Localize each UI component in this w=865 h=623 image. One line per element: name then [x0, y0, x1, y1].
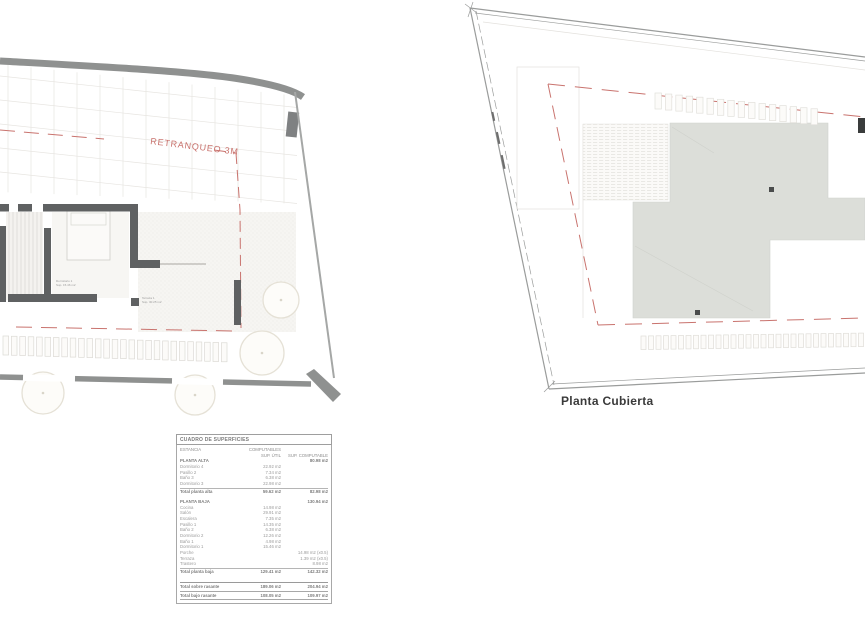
- terrain-grid-lines: [0, 65, 297, 204]
- table-row: Total bajo rasante108.05 m2109.97 m2: [180, 592, 328, 601]
- drawing-sheet: RETRANQUEO 3M Dormitorio 1 Sup. 15.4: [0, 0, 865, 623]
- deck-floor: [6, 212, 43, 300]
- bed-symbol: [67, 210, 110, 260]
- table-row: Total planta baja129.41 m2142.32 m2: [180, 568, 328, 575]
- road-edge-band: [0, 61, 303, 97]
- table-row: Total planta alta59.62 m282.98 m2: [180, 488, 328, 495]
- room-label-area: Sup. 15.46 m2: [56, 283, 76, 287]
- roof-plan-caption: Planta Cubierta: [561, 394, 654, 408]
- roof-plan-drawing: [455, 0, 865, 400]
- ground-floor-plan-drawing: RETRANQUEO 3M Dormitorio 1 Sup. 15.4: [0, 40, 345, 430]
- table-row: Dormitorio 322.98 m2: [180, 481, 328, 487]
- pergola-slats-bottom: [641, 333, 864, 349]
- hatched-deck-area: [583, 124, 668, 200]
- table-grand-totals: Total sobre rasante189.06 m2204.94 m2Tot…: [180, 582, 328, 600]
- surface-table: CUADRO DE SUPERFICIES ESTANCIACOMPUTABLE…: [176, 434, 332, 604]
- room-label-area: Sup. 30.25 m2: [142, 300, 162, 304]
- surface-table-body: ESTANCIACOMPUTABLESSUP. ÚTILSUP. COMPUTA…: [176, 445, 332, 604]
- louver-slats: [3, 336, 227, 362]
- table-row: Total sobre rasante189.06 m2204.94 m2: [180, 583, 328, 592]
- table-row: Trastero8.98 m2: [180, 561, 328, 567]
- retranqueo-label: RETRANQUEO 3M: [150, 136, 239, 157]
- pergola-slats-top: [655, 93, 817, 125]
- surface-table-title: CUADRO DE SUPERFICIES: [176, 434, 332, 445]
- edge-marker: [858, 118, 865, 133]
- street-label-illegible: [491, 112, 505, 169]
- right-boundary-fence: [295, 92, 334, 378]
